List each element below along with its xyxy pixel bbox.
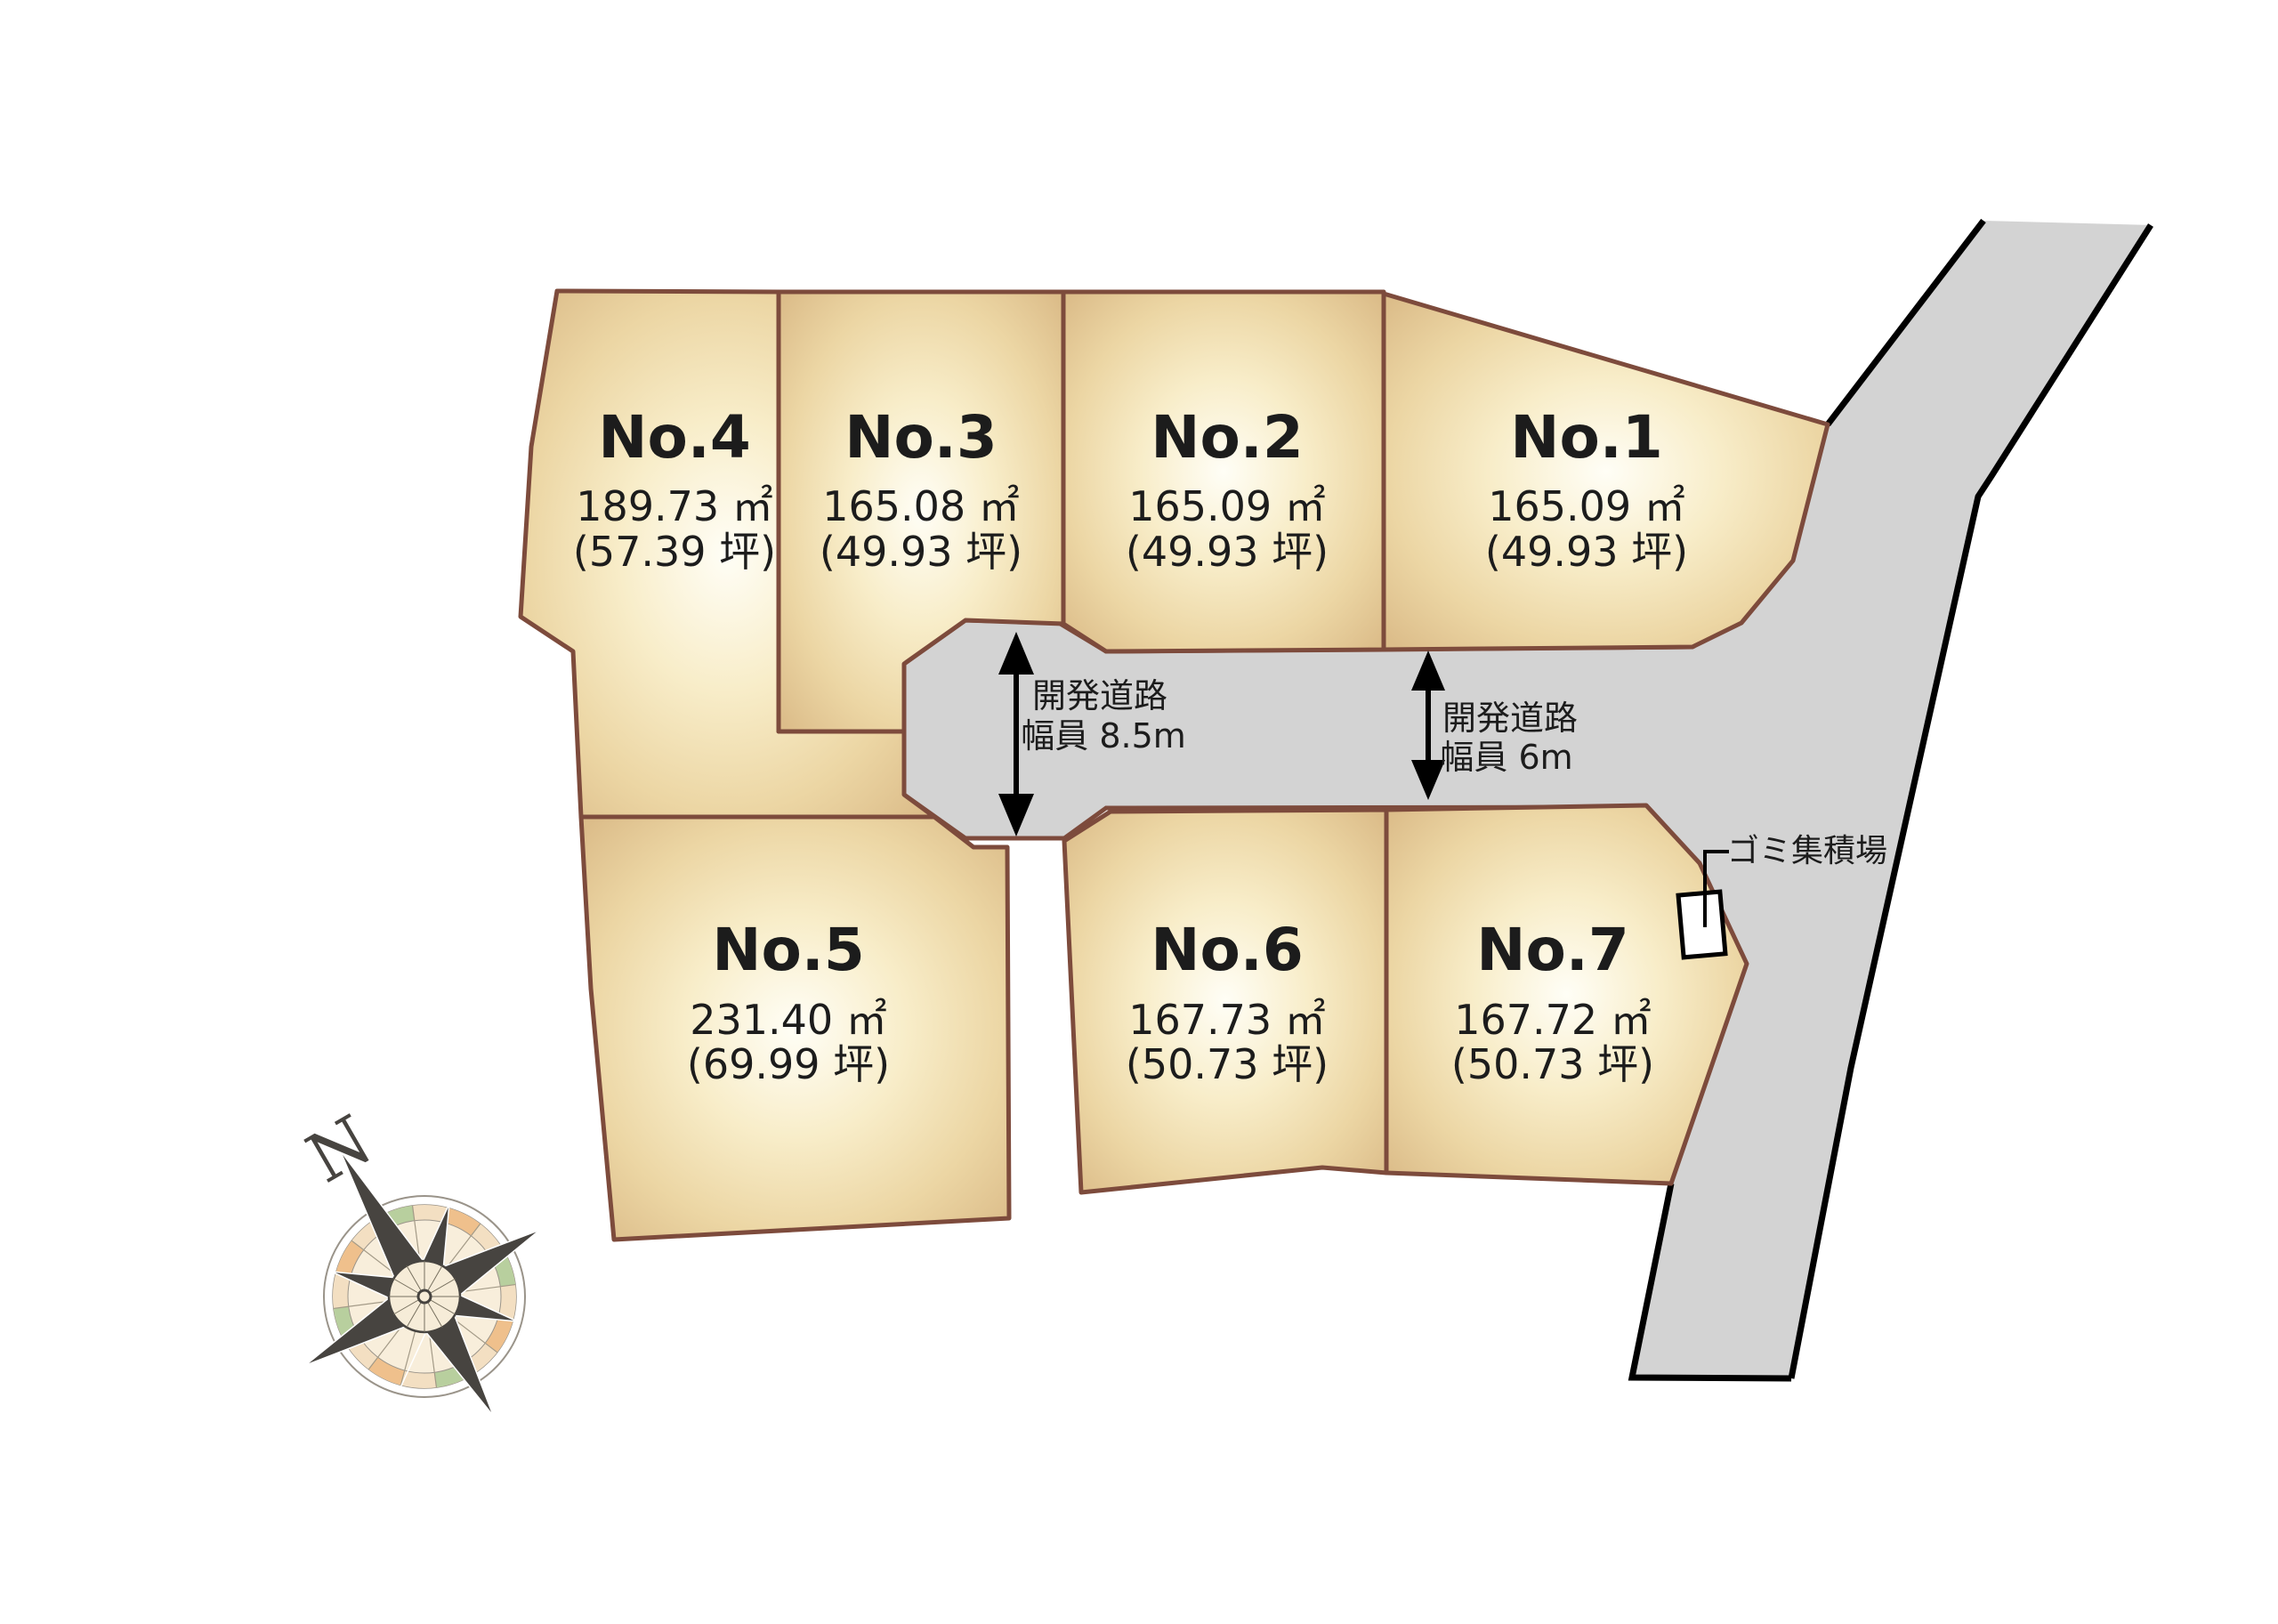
lot-no2-tsubo: (49.93 坪) <box>1126 528 1329 576</box>
lot-no7-tsubo: (50.73 坪) <box>1451 1040 1654 1088</box>
land-plot-map: No.4 189.73 ㎡ (57.39 坪) No.3 165.08 ㎡ (4… <box>0 0 2278 1624</box>
lot-no6-label: No.6 167.73 ㎡ (50.73 坪) <box>1126 916 1329 1088</box>
lot-no1-tsubo: (49.93 坪) <box>1485 528 1688 576</box>
lot-no3-tsubo: (49.93 坪) <box>820 528 1022 576</box>
lot-no1-label: No.1 165.09 ㎡ (49.93 坪) <box>1485 403 1688 576</box>
lot-no5-area: 231.40 ㎡ <box>690 996 887 1044</box>
lot-no1-area: 165.09 ㎡ <box>1488 482 1685 530</box>
compass-rose-icon: N <box>200 1046 611 1484</box>
road-85-label-line1: 開発道路 <box>1032 676 1167 715</box>
lot-no4-label: No.4 189.73 ㎡ (57.39 坪) <box>573 403 776 576</box>
lot-no5-label: No.5 231.40 ㎡ (69.99 坪) <box>687 916 890 1088</box>
lot-no6-title: No.6 <box>1151 916 1304 984</box>
lot-no3-title: No.3 <box>844 403 998 472</box>
garbage-label: ゴミ集積場 <box>1727 833 1887 869</box>
road-85-label-line2: 幅員 8.5m <box>1021 716 1186 755</box>
lot-no4-area: 189.73 ㎡ <box>576 482 773 530</box>
garbage-box-icon <box>1678 892 1725 957</box>
road-6-label-line2: 幅員 6m <box>1440 738 1572 777</box>
lot-no5-tsubo: (69.99 坪) <box>687 1040 890 1088</box>
lot-no1-region <box>1384 294 1828 650</box>
lot-no7-label: No.7 167.72 ㎡ (50.73 坪) <box>1451 916 1654 1088</box>
lot-no2-title: No.2 <box>1151 403 1304 472</box>
lot-no3-label: No.3 165.08 ㎡ (49.93 坪) <box>820 403 1022 576</box>
lot-no4-title: No.4 <box>598 403 751 472</box>
lot-no7-title: No.7 <box>1476 916 1629 984</box>
lot-no1-title: No.1 <box>1510 403 1663 472</box>
lot-no2-area: 165.09 ㎡ <box>1128 482 1326 530</box>
lot-no6-area: 167.73 ㎡ <box>1128 996 1326 1044</box>
lot-no2-region <box>1063 292 1384 651</box>
lot-no3-area: 165.08 ㎡ <box>822 482 1020 530</box>
lot-no4-tsubo: (57.39 坪) <box>573 528 776 576</box>
lot-no7-region <box>1386 805 1747 1184</box>
lot-no7-area: 167.72 ㎡ <box>1454 996 1652 1044</box>
lot-no2-label: No.2 165.09 ㎡ (49.93 坪) <box>1126 403 1329 576</box>
compass-north-label: N <box>294 1100 384 1198</box>
lot-no6-tsubo: (50.73 坪) <box>1126 1040 1329 1088</box>
lot-no5-title: No.5 <box>712 916 865 984</box>
road-6-label-line1: 開発道路 <box>1442 699 1578 738</box>
